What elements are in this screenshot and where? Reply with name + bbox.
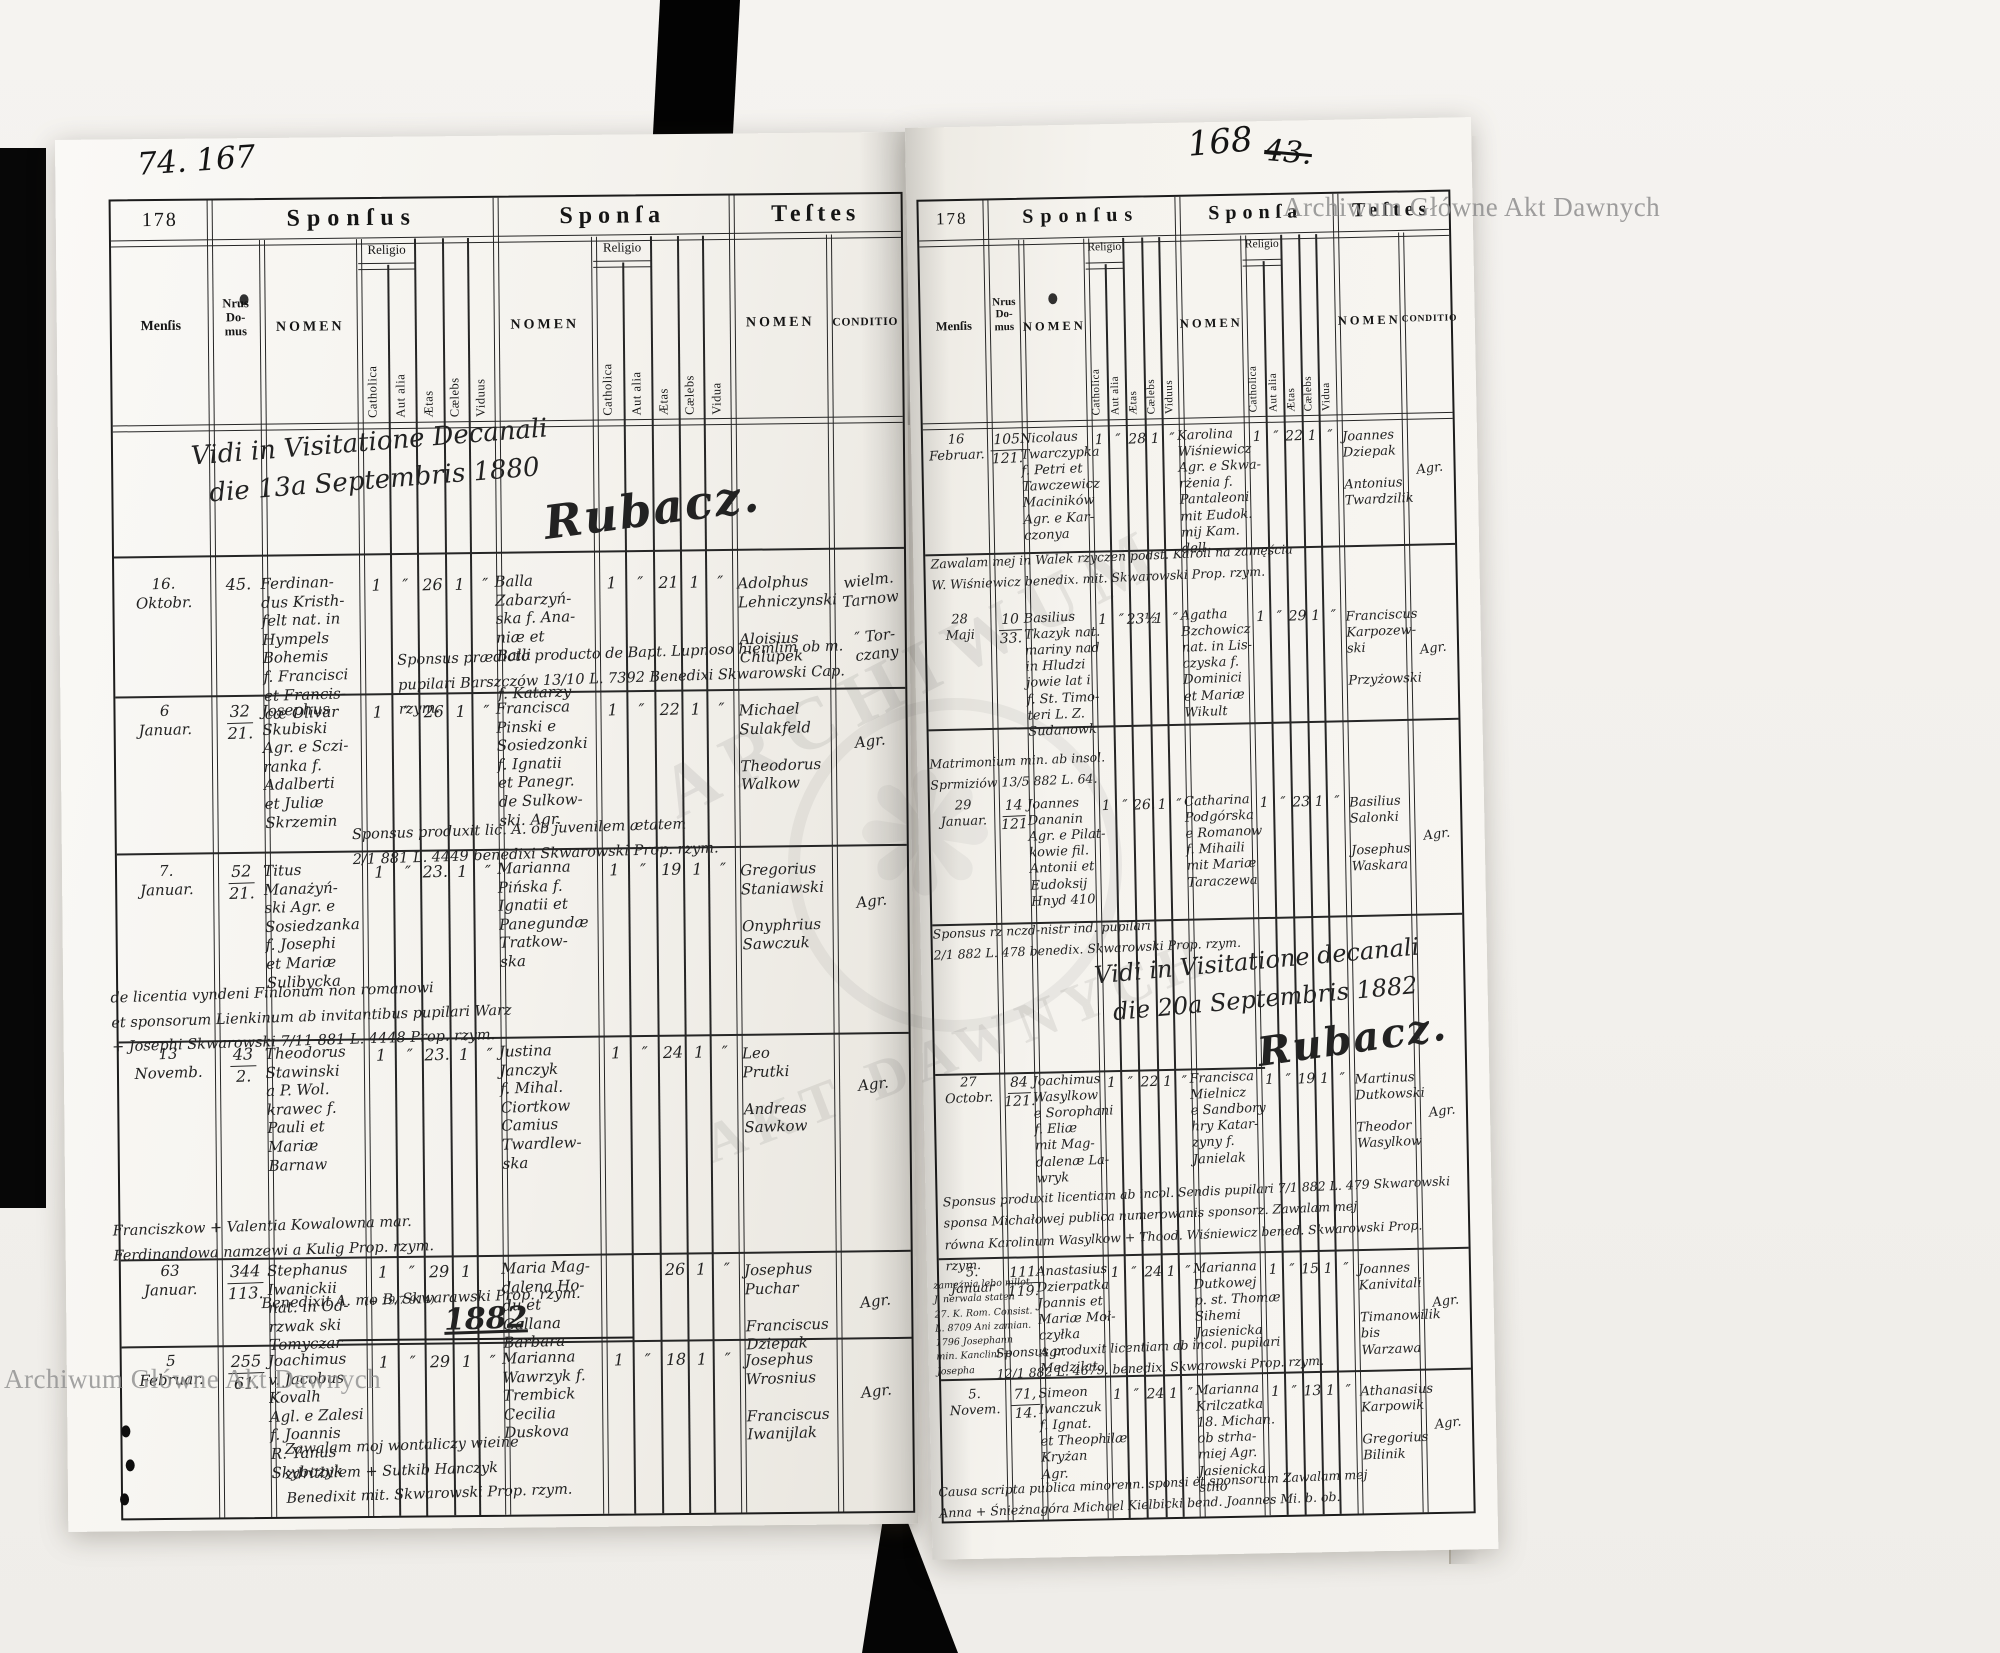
ink-spot <box>239 294 248 305</box>
table-rule-horizontal <box>923 411 1453 430</box>
archival-scan: 178SponſusSponſaTeſtesReligioReligioMenſ… <box>0 0 2000 1653</box>
entry-sponsus-mark: 1 <box>362 575 391 596</box>
column-label-catholica: Catholica <box>1245 271 1260 412</box>
entry-sponsa-mark: 1 <box>597 573 626 594</box>
entry-sponsus-mark: 29 <box>425 1262 454 1283</box>
column-label-nomen-sponsus: NOMEN <box>262 319 359 336</box>
column-label-nomen-sponsus: NOMEN <box>1022 319 1087 335</box>
table-rule-horizontal <box>358 262 415 270</box>
table-rule-horizontal <box>114 547 904 558</box>
column-label-mensis: Menſis <box>112 319 210 336</box>
religio-group-label: Religio <box>593 239 651 256</box>
column-label-conditio: CONDITIO <box>829 316 902 329</box>
entry-sponsus-mark: 1 <box>369 1262 398 1283</box>
entry-sponsus-mark: 1 <box>445 574 474 595</box>
column-label-caelebs: Cælebs <box>1143 303 1157 414</box>
entry-sponsa-mark: 18 <box>661 1349 690 1370</box>
right-folio-number-struck: 43. <box>1263 132 1314 173</box>
religio-group-label: Religio <box>1242 238 1281 251</box>
entry-house-number: 45. <box>212 574 265 595</box>
column-label-vidua: Vidua <box>1318 300 1332 411</box>
entry-sponsa-mark: ″ <box>711 1042 740 1063</box>
column-label-catholica: Catholica <box>1087 274 1102 415</box>
entry-sponsa-mark: ″ <box>626 573 655 594</box>
binding-ink-dot <box>121 1425 130 1437</box>
entry-testes-names: Josephus Puchar Franciscus Dziepak <box>744 1258 848 1354</box>
entry-sponsa-mark: ″ <box>1334 1382 1363 1401</box>
entry-sponsa-mark: 1 <box>687 1349 716 1370</box>
entry-sponsa-mark: ″ <box>1315 427 1344 446</box>
column-label-aetas: Ætas <box>656 314 672 415</box>
column-group-sponsus: Sponſus <box>209 204 495 234</box>
archive-watermark-top-right: Archiwum Główne Akt Dawnych <box>1283 192 1660 223</box>
column-label-aut-alia: Aut alia <box>1264 271 1279 412</box>
column-label-nomen-sponsa: NOMEN <box>1179 316 1244 332</box>
binding-ink-dot <box>126 1459 135 1471</box>
column-label-catholica: Catholica <box>599 273 615 416</box>
column-group-sponsa: Sponſa <box>495 202 731 231</box>
entry-mensis: 5. Novem. <box>943 1386 1006 1421</box>
entry-sponsa-mark: 1 <box>682 859 711 880</box>
entry-sponsa-mark: ″ <box>706 572 735 593</box>
form-number: 178 <box>111 209 209 233</box>
right-folio-number: 168 <box>1186 118 1254 166</box>
entry-sponsa-mark: ″ <box>1322 793 1351 812</box>
column-label-aut-alia: Aut alia <box>1106 274 1121 415</box>
column-label-nrus-domus: Nrus Do- mus <box>986 296 1022 334</box>
entry-mensis: 7. Januar. <box>119 860 214 900</box>
column-label-viduus: Viduus <box>1161 303 1175 414</box>
column-label-vidua: Vidua <box>708 302 724 415</box>
entry-sponsus-mark: 1 <box>451 1261 480 1282</box>
form-number: 178 <box>919 208 985 229</box>
column-label-aetas: Ætas <box>1126 316 1140 415</box>
top-gutter-black-bar <box>652 0 740 153</box>
left-folio-number: 74. 167 <box>136 138 257 185</box>
entry-sponsus-mark: 1 <box>452 1351 481 1372</box>
entry-conditio: Agr. <box>836 1288 915 1315</box>
entry-sponsus-mark: 1 <box>363 702 392 723</box>
table-rule-horizontal <box>1086 261 1124 269</box>
entry-sponsa-mark: 1 <box>684 1042 713 1063</box>
column-group-testes: Teſtes <box>731 200 901 229</box>
column-label-mensis: Menſis <box>921 318 987 334</box>
entry-sponsus-mark: 26 <box>418 575 447 596</box>
column-label-conditio: CONDITIO <box>1402 314 1451 325</box>
column-label-nomen-testes: NOMEN <box>732 315 829 332</box>
table-rule-horizontal <box>919 228 1449 247</box>
left-edge-black-strip <box>0 148 46 1208</box>
column-label-catholica: Catholica <box>364 275 380 418</box>
row-spanning-note: Zawalam moj wontaliczy wieine zdritbilem… <box>284 1424 726 1512</box>
column-label-caelebs: Cælebs <box>682 302 698 415</box>
column-label-nomen-testes: NOMEN <box>1337 312 1402 328</box>
entry-sponsa-mark: 1 <box>686 1259 715 1280</box>
entry-mensis: 6 Januar. <box>117 700 212 740</box>
entry-sponsa-mark: 24 <box>658 1042 687 1063</box>
column-label-aetas: Ætas <box>420 316 436 417</box>
row-spanning-note: Sponsus produxit licentiam ab incol. Sen… <box>942 1170 1460 1276</box>
entry-sponsus-mark: 29 <box>426 1352 455 1373</box>
entry-sponsa-mark: ″ <box>634 1350 663 1371</box>
entry-sponsa-mark: ″ <box>713 1259 742 1280</box>
entry-sponsa-mark: 1 <box>602 1043 631 1064</box>
column-label-aut-alia: Aut alia <box>628 272 644 415</box>
column-label-aut-alia: Aut alia <box>393 275 409 418</box>
entry-mensis: 16 Februar. <box>925 431 988 466</box>
column-label-caelebs: Cælebs <box>447 304 463 417</box>
archive-seal-ornament: ❋ <box>858 742 992 930</box>
entry-conditio: Agr. <box>837 1378 916 1405</box>
entry-sponsa-mark: ″ <box>631 1043 660 1064</box>
left-register-page: 178SponſusSponſaTeſtesReligioReligioMenſ… <box>55 132 918 1532</box>
religio-group-label: Religio <box>1085 241 1123 254</box>
religio-group-label: Religio <box>358 242 415 259</box>
table-rule-horizontal <box>1243 258 1282 266</box>
column-label-aetas: Ætas <box>1283 313 1297 412</box>
entry-sponsa-mark: ″ <box>1328 1070 1357 1089</box>
entry-sponsa-mark: 1 <box>605 1350 634 1371</box>
row-margin-notes: zamężnia lebo nillot. J. nerwala staten … <box>933 1275 1047 1379</box>
entry-mensis: 16. Oktobr. <box>116 573 211 613</box>
entry-sponsa-mark: 21 <box>654 572 683 593</box>
entry-house-number: 3221. <box>213 701 266 744</box>
column-label-caelebs: Cælebs <box>1300 300 1314 411</box>
entry-testes-names: Josephus Wrosnius Franciscus Iwanijlak <box>745 1348 849 1444</box>
archive-watermark-bottom-left: Archiwum Główne Akt Dawnych <box>4 1364 381 1395</box>
column-group-sponsus: Sponſus <box>985 203 1177 230</box>
entry-sponsa-mark: ″ <box>1331 1260 1360 1279</box>
entry-sponsa-mark: ″ <box>1319 607 1348 626</box>
entry-sponsus-mark: ″ <box>397 1262 426 1283</box>
column-label-nomen-sponsa: NOMEN <box>496 317 594 334</box>
entry-sponsus-mark: ″ <box>391 575 420 596</box>
entry-sponsa-mark: ″ <box>714 1349 743 1370</box>
year-divider: 1882 <box>425 1299 546 1340</box>
column-label-nrus-domus: Nrus Do- mus <box>210 296 262 338</box>
entry-sponsa-mark: 1 <box>680 572 709 593</box>
entry-house-number: 5221. <box>215 861 268 904</box>
binding-ink-dot <box>120 1493 129 1505</box>
column-label-viduus: Viduus <box>473 304 489 417</box>
entry-sponsus-mark: ″ <box>398 1352 427 1373</box>
entry-sponsa-mark: 26 <box>660 1259 689 1280</box>
entry-sponsa-mark: ″ <box>709 859 738 880</box>
ink-spot <box>1048 293 1057 304</box>
table-rule-horizontal <box>593 260 651 268</box>
